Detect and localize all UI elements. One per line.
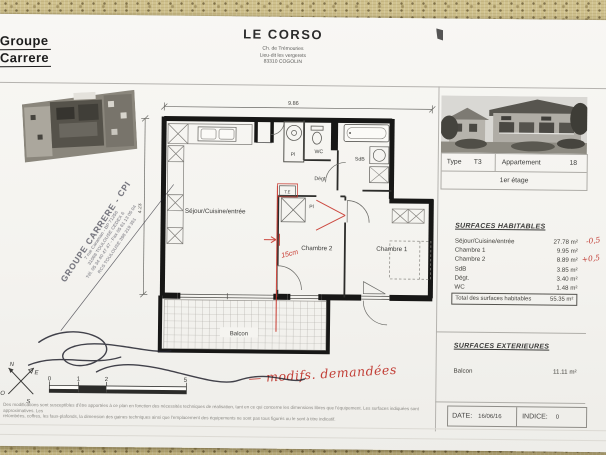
row-label: Chambre 2 [455,256,486,263]
paper-crease [0,434,606,442]
site-plan-thumbnail [21,90,137,163]
bathroom: SdB [344,124,390,182]
apartment-number: 18 [560,160,587,167]
apartment-label: Appartement [496,159,560,167]
room-label-pl2: Pl [309,204,314,210]
plan-width-dimension: 9.86 [288,101,299,107]
room-label-chambre1: Chambre 1 [376,246,408,253]
chambre1-furniture [390,209,432,279]
scale-tick-1: 1 [77,377,81,383]
company-logo: Groupe Carrere [0,33,51,67]
electrical-panel: T.E [279,186,295,196]
header-logo-mark-icon [436,28,443,40]
compass-o: O [0,391,5,397]
row-value: 3.85 m² [557,266,578,273]
row-value: 11.11 m² [553,369,577,376]
room-label-sejour: Séjour/Cuisine/entrée [185,208,246,216]
wc-room: WC [311,126,324,155]
plan-sheet-paper: Groupe Carrere LE CORSO Ch. de Trémourie… [0,14,606,453]
plan-height-dimension: 4.23 [137,203,143,213]
row-label: Dégt. [455,274,470,281]
table-row: Balcon 11.11 m² [454,368,577,376]
handwritten-correction: -0,5 [585,235,601,246]
room-label-pl1: Pl [291,152,296,158]
compass-e: E [34,370,39,376]
project-title: LE CORSO [203,26,363,43]
laundry-closet: Pl [284,122,304,162]
unit-info-row: Type T3 Appartement 18 [442,153,587,173]
row-value: 9.95 m² [557,248,578,255]
handwritten-wall-shift-note: 15cm [281,249,299,260]
building-photo [441,95,588,154]
date-cell: DATE: 16/06/16 [448,407,517,427]
label-te: T.E [284,189,290,194]
disclaimer-text: Des modifications sont susceptibles d'êt… [3,403,435,424]
row-value: 27.78 m² [553,239,577,246]
surfaces-exterieures-title: SURFACES EXTERIEURES [454,343,550,351]
row-value: 8.89 m² [557,257,578,264]
room-label-wc: WC [314,149,323,155]
balcony: Balcon [160,296,329,355]
row-value: 3.40 m² [557,276,578,283]
total-surface-box: Total des surfaces habitables 55.35 m² [451,293,577,306]
door-arcs [269,122,370,291]
surfaces-habitables-table: Séjour/Cuisine/entrée 27.78 m² -0,5 Cham… [454,237,578,293]
date-label: DATE: [452,413,472,420]
scale-bar: 0 1 2 5 [48,376,188,393]
compass-rose-icon: N E O S [0,362,39,405]
room-label-balcon: Balcon [230,331,248,337]
unit-info-table: Type T3 Appartement 18 1er étage [440,152,587,191]
total-label: Total des surfaces habitables [455,296,531,303]
total-value: 55.35 m² [550,297,573,303]
row-label: Chambre 1 [455,247,486,254]
floor-row: 1er étage [441,171,586,190]
scale-tick-5: 5 [184,378,188,384]
type-value: T3 [474,154,496,171]
company-name-top: Groupe [0,33,51,50]
room-label-chambre2: Chambre 2 [301,245,333,252]
scale-tick-0: 0 [48,376,52,382]
row-label: Balcon [454,368,473,375]
room-label-degt: Dégt. [314,176,326,182]
floor-plan: 9.86 4.23 Balcon [137,93,444,366]
indice-value: 0 [556,414,559,420]
type-label: Type [442,158,474,165]
company-name-bottom: Carrere [0,50,51,67]
header-divider [0,82,606,90]
date-indice-box: DATE: 16/06/16 INDICE: 0 [447,406,587,428]
room-label-sdb: SdB [355,157,365,163]
date-value: 16/06/16 [478,413,501,419]
compass-n: N [10,362,15,368]
indice-label: INDICE: [522,413,548,420]
section-divider [435,401,585,404]
kitchen-unit [167,124,252,245]
floor-value: 1er étage [500,177,529,184]
row-label: WC [454,284,464,291]
scanned-floorplan-photo: Groupe Carrere LE CORSO Ch. de Trémourie… [0,0,606,455]
project-address: Ch. de Trémouries Lieu-dit les vergerets… [203,45,363,66]
row-label: SdB [455,265,467,272]
surfaces-habitables-title: SURFACES HABITABLES [455,223,545,231]
stamp-line: GROUPE CARRERE - CPI [41,153,150,310]
handwritten-correction: +0,5 [581,253,600,264]
address-line-3: 83310 COGOLIN [203,58,363,66]
chambre2-closet [281,198,305,222]
row-label: Séjour/Cuisine/entrée [455,238,515,246]
row-value: 1.48 m² [556,285,577,292]
scale-tick-2: 2 [105,377,109,383]
table-row: WC 1.48 m² [454,283,577,293]
indice-cell: INDICE: 0 [517,407,586,427]
section-divider [436,331,586,334]
